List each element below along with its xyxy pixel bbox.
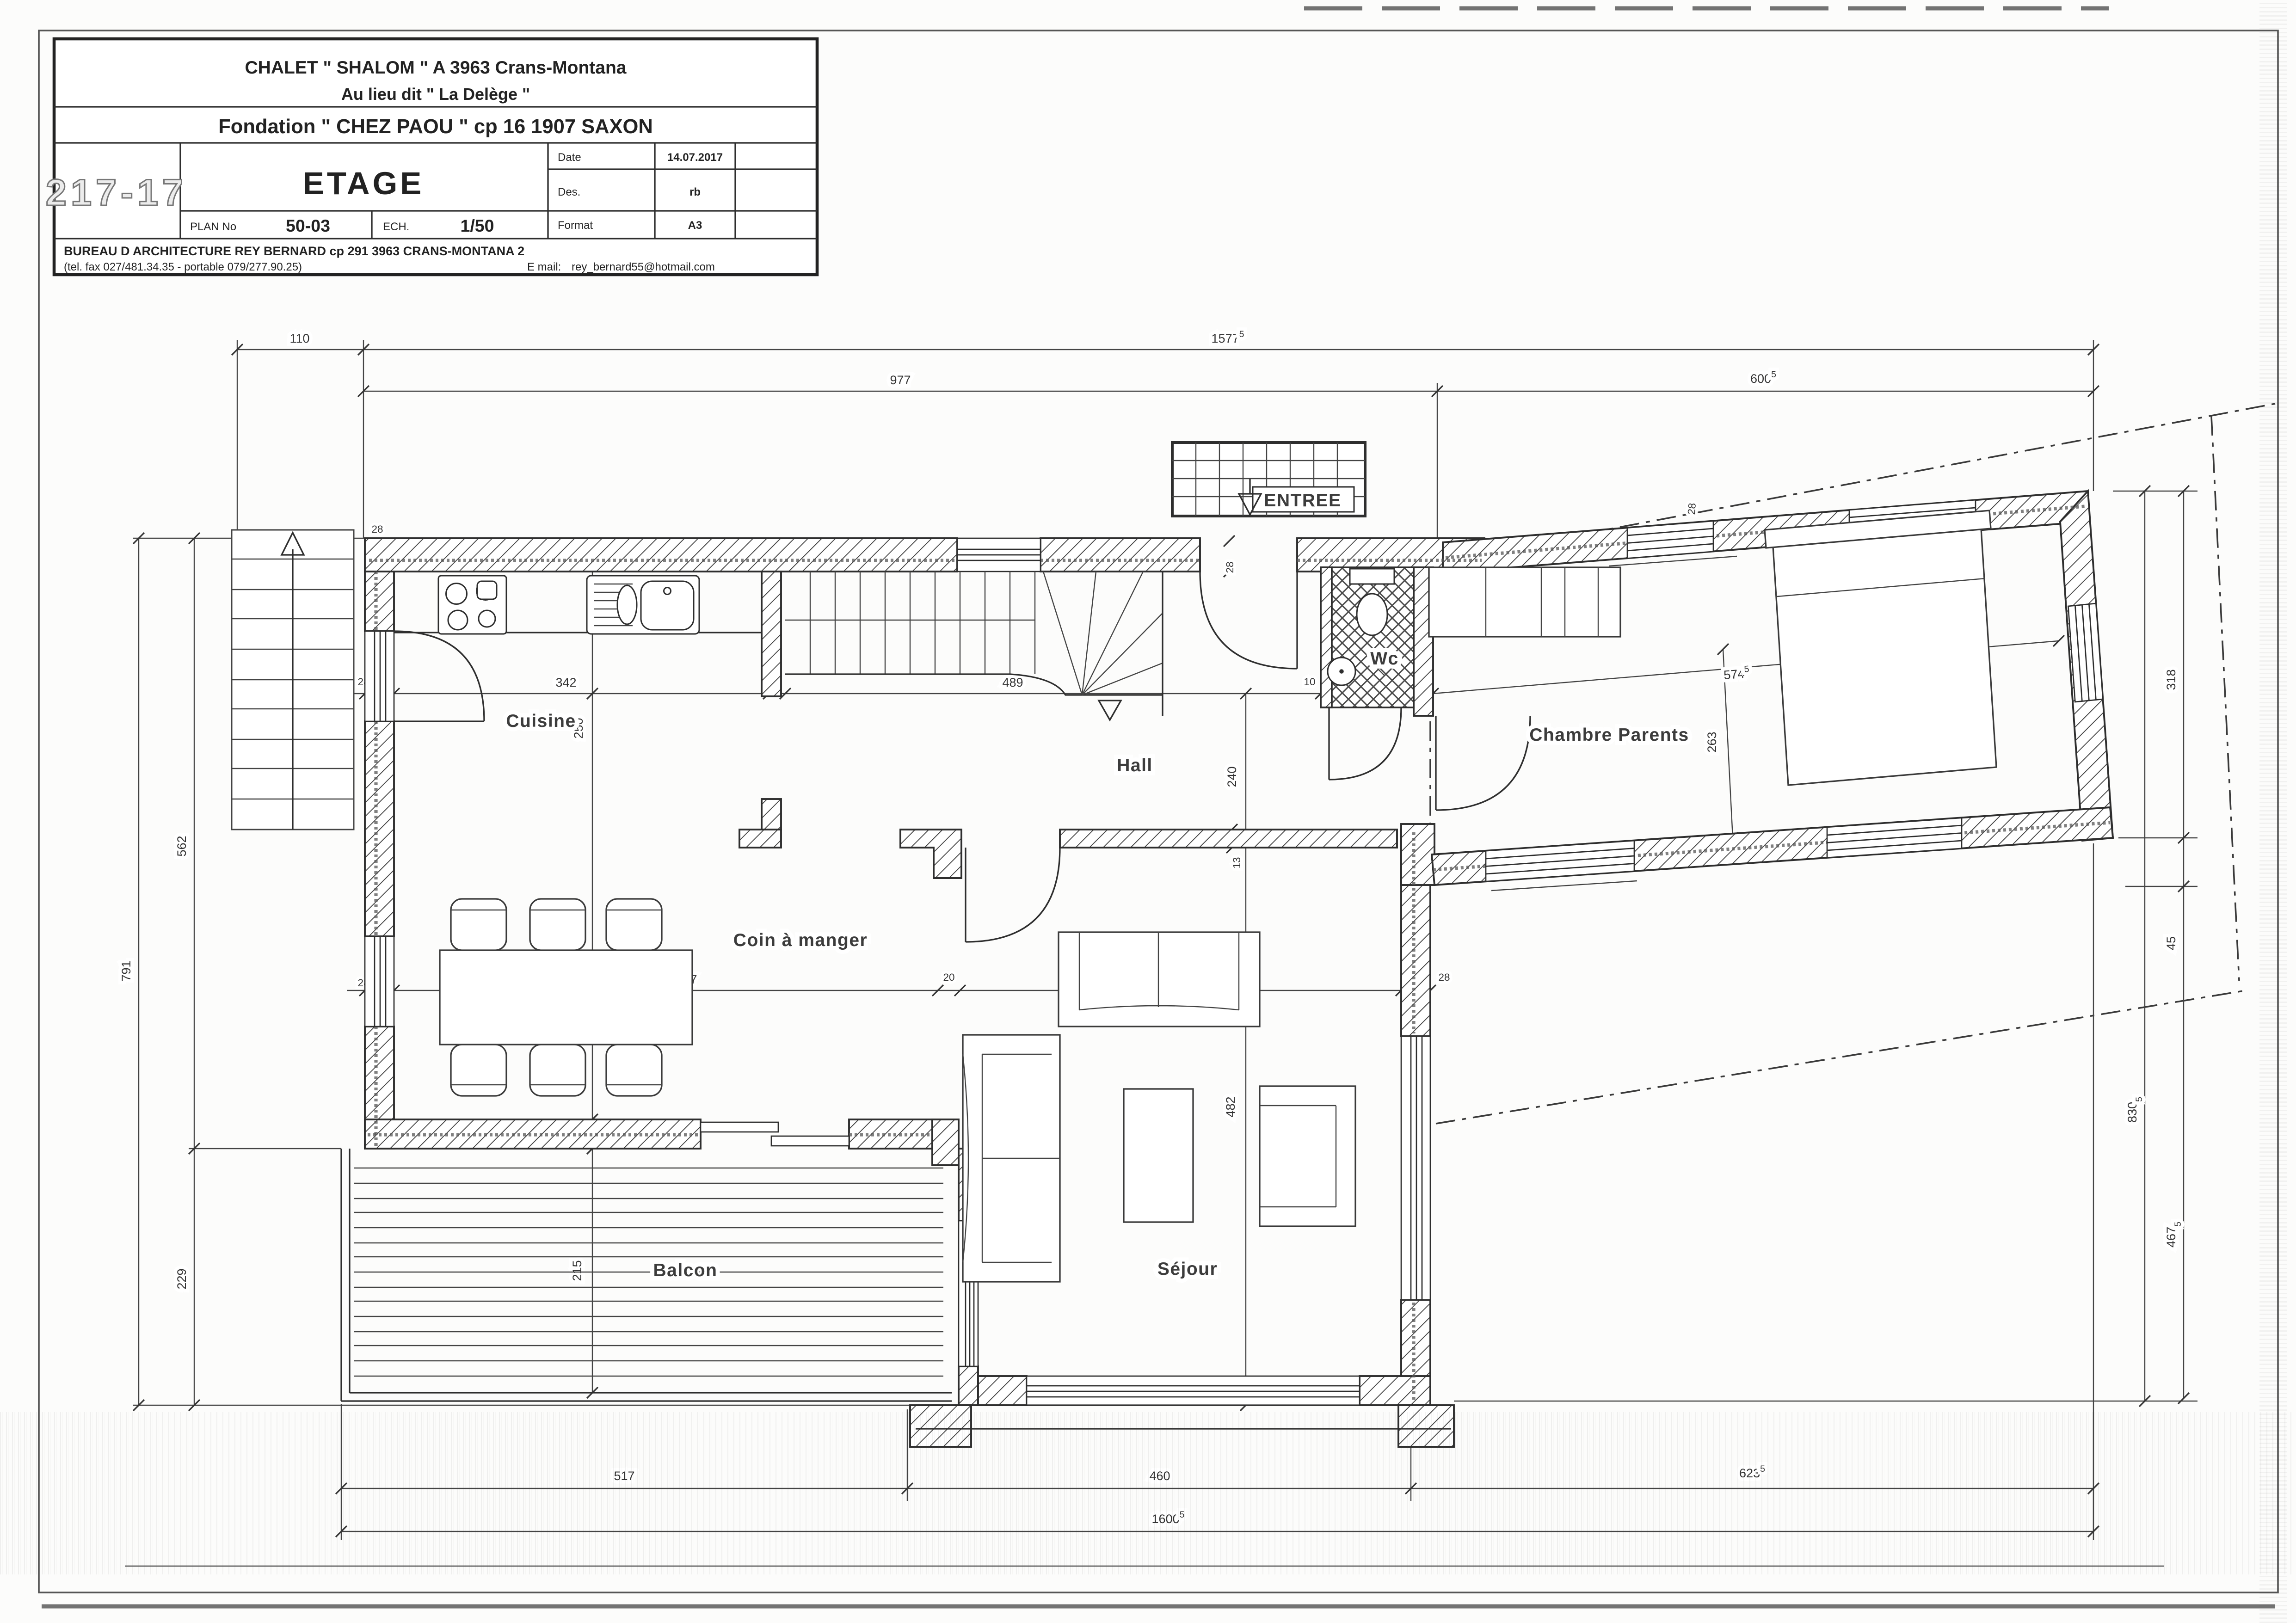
phone-line: (tel. fax 027/481.34.35 - portable 079/2…: [64, 261, 302, 273]
scale-label: ECH.: [383, 221, 409, 233]
closet: [1429, 567, 1620, 637]
armchair: [1260, 1086, 1355, 1226]
interior-stair: [785, 572, 1163, 720]
chair: [530, 1045, 585, 1096]
plan-no-label: PLAN No: [190, 221, 236, 233]
doc-number: 217-17: [46, 172, 187, 214]
date-value: 14.07.2017: [667, 151, 723, 164]
dim-45: 45: [2164, 936, 2178, 950]
room-label-wc: Wc: [1370, 649, 1399, 669]
dim-240: 240: [1225, 766, 1239, 787]
dim-318: 318: [2164, 669, 2178, 690]
dim-460: 460: [1149, 1469, 1170, 1483]
toilet-tank: [1350, 569, 1394, 584]
toilet-bowl: [1357, 594, 1387, 635]
chair: [451, 899, 506, 950]
dim-20: 20: [943, 971, 954, 983]
dim-28-door: 28: [1224, 561, 1236, 573]
dim-600-5: 6005: [1750, 369, 1776, 386]
chair: [451, 1045, 506, 1096]
chair: [606, 1045, 662, 1096]
plan-no-value: 50-03: [286, 216, 330, 235]
wc-door-arc: [1329, 707, 1401, 780]
dim-562: 562: [175, 836, 189, 856]
chambre-door-arc: [1436, 716, 1530, 810]
coffee-table: [1124, 1089, 1193, 1222]
stair-down-arrow-icon: [1099, 701, 1121, 720]
room-label-coin: Coin à manger: [733, 930, 868, 950]
dining-table: [440, 950, 692, 1045]
dim-489: 489: [1002, 676, 1023, 689]
drawing-sheet: CHALET " SHALOM " A 3963 Crans-Montana A…: [0, 0, 2296, 1623]
email-value: rey_bernard55@hotmail.com: [572, 261, 715, 273]
dim-tl28: 28: [371, 523, 383, 535]
dim-623-5: 6235: [1739, 1464, 1765, 1480]
exterior-stair: [232, 530, 354, 830]
dim-467-5: 4675: [2164, 1222, 2183, 1248]
dim-574-5: 5745: [1723, 664, 1750, 682]
terrace-edge: [916, 1405, 1451, 1429]
kitchen: [394, 576, 762, 634]
dim-791: 791: [119, 960, 133, 981]
balcony: Balcon: [341, 1149, 952, 1401]
bed: [1773, 529, 1996, 785]
hall-sejour-door-arc: [966, 848, 1060, 942]
dim-482: 482: [1224, 1096, 1237, 1117]
kitchen-exterior-door-arc: [394, 631, 484, 721]
entrance-door-arc: [1200, 572, 1297, 669]
sofa-top: [1059, 932, 1260, 1027]
wc-room: Wc: [1328, 567, 1414, 707]
dim-10: 10: [1304, 676, 1315, 688]
email-label: E mail:: [527, 261, 561, 273]
room-label-hall: Hall: [1117, 756, 1153, 775]
top-dimensions: 110 15775 977 6005: [232, 329, 2099, 542]
dim-1577-5: 15775: [1212, 329, 1244, 345]
sejour-furniture: [963, 932, 1355, 1282]
des-label: Des.: [558, 186, 580, 198]
chair: [530, 899, 585, 950]
client-line: Fondation " CHEZ PAOU " cp 16 1907 SAXON: [218, 116, 653, 138]
des-value: rb: [689, 186, 701, 198]
dim-342: 342: [555, 676, 576, 689]
format-value: A3: [688, 219, 702, 232]
dim-e28r: 28: [1438, 971, 1450, 983]
entrance-porch: ENTREE: [1172, 443, 1365, 516]
project-title-line2: Au lieu dit " La Delège ": [341, 85, 530, 104]
dim-517: 517: [614, 1469, 634, 1483]
dim-830-5: 8305: [2125, 1097, 2144, 1123]
chair: [606, 899, 662, 950]
faucet-icon: [664, 588, 671, 595]
dim-1600-5: 16005: [1152, 1510, 1185, 1526]
scale-value: 1/50: [461, 216, 494, 235]
dim-229: 229: [175, 1268, 189, 1289]
dim-977: 977: [890, 373, 911, 387]
room-label-chambre: Chambre Parents: [1529, 725, 1689, 745]
room-label-sejour: Séjour: [1157, 1259, 1218, 1279]
dim-215: 215: [570, 1260, 584, 1281]
office-line: BUREAU D ARCHITECTURE REY BERNARD cp 291…: [64, 244, 524, 258]
dim-263: 263: [1705, 732, 1719, 752]
project-title-line1: CHALET " SHALOM " A 3963 Crans-Montana: [245, 58, 626, 78]
room-label-cuisine: Cuisine: [506, 711, 576, 731]
title-block: CHALET " SHALOM " A 3963 Crans-Montana A…: [46, 39, 817, 275]
room-label-balcon: Balcon: [653, 1260, 717, 1280]
dim-28-wing: 28: [1686, 503, 1698, 515]
room-label-entree: ENTREE: [1264, 491, 1341, 510]
dining-furniture: [440, 899, 692, 1096]
floor-plan-svg: CHALET " SHALOM " A 3963 Crans-Montana A…: [0, 0, 2296, 1623]
date-label: Date: [558, 151, 581, 164]
sheet-name: ETAGE: [303, 166, 425, 201]
format-label: Format: [558, 219, 593, 232]
dim-13: 13: [1231, 857, 1243, 868]
dim-110: 110: [289, 332, 309, 345]
